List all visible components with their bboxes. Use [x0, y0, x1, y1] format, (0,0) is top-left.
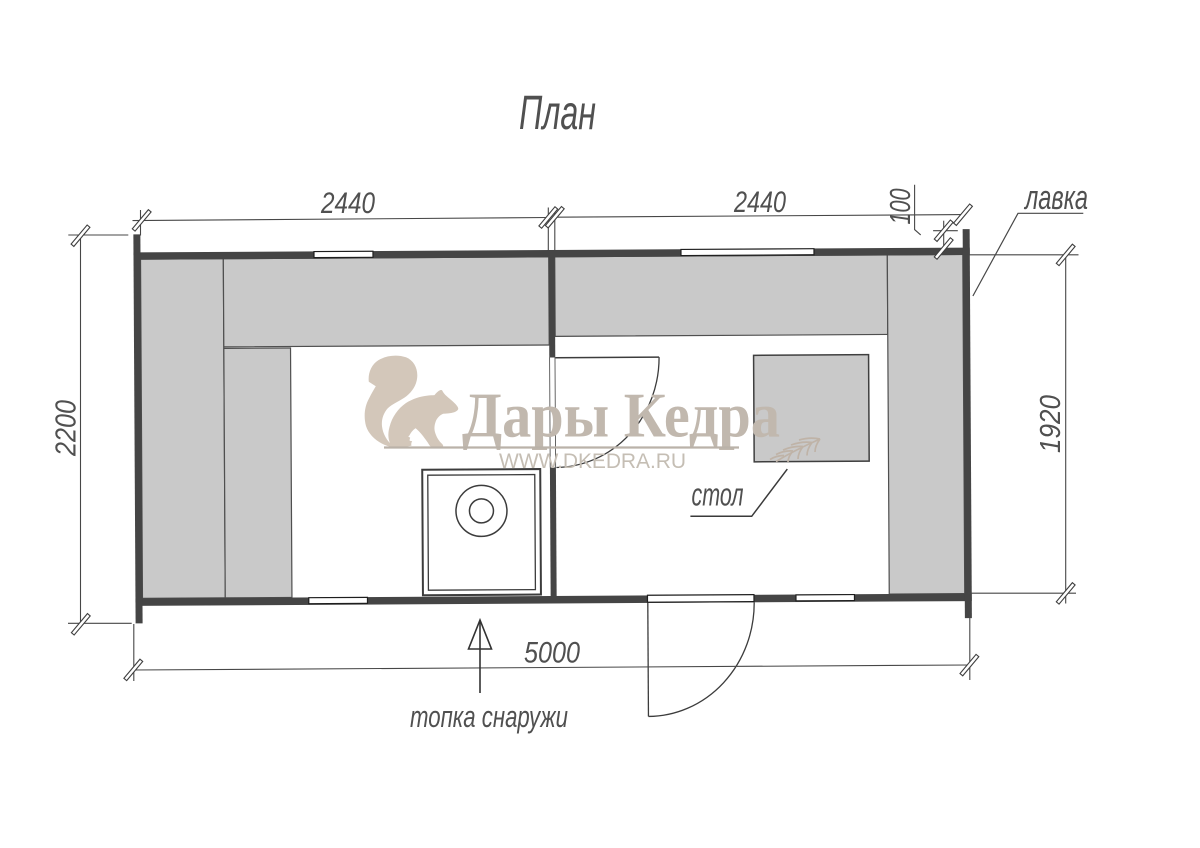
svg-text:100: 100: [885, 189, 917, 225]
svg-text:топка снаружи: топка снаружи: [410, 699, 568, 734]
svg-text:стол: стол: [692, 477, 744, 513]
svg-text:1920: 1920: [1035, 395, 1067, 453]
svg-text:2440: 2440: [320, 187, 375, 220]
svg-text:2200: 2200: [51, 400, 83, 457]
svg-text:План: План: [519, 87, 596, 140]
svg-text:WWW.DKEDRA.RU: WWW.DKEDRA.RU: [499, 450, 686, 473]
svg-text:5000: 5000: [524, 637, 580, 670]
svg-text:2440: 2440: [733, 186, 786, 219]
svg-text:лавка: лавка: [1024, 179, 1088, 217]
svg-text:Дары Кедра: Дары Кедра: [462, 381, 780, 451]
